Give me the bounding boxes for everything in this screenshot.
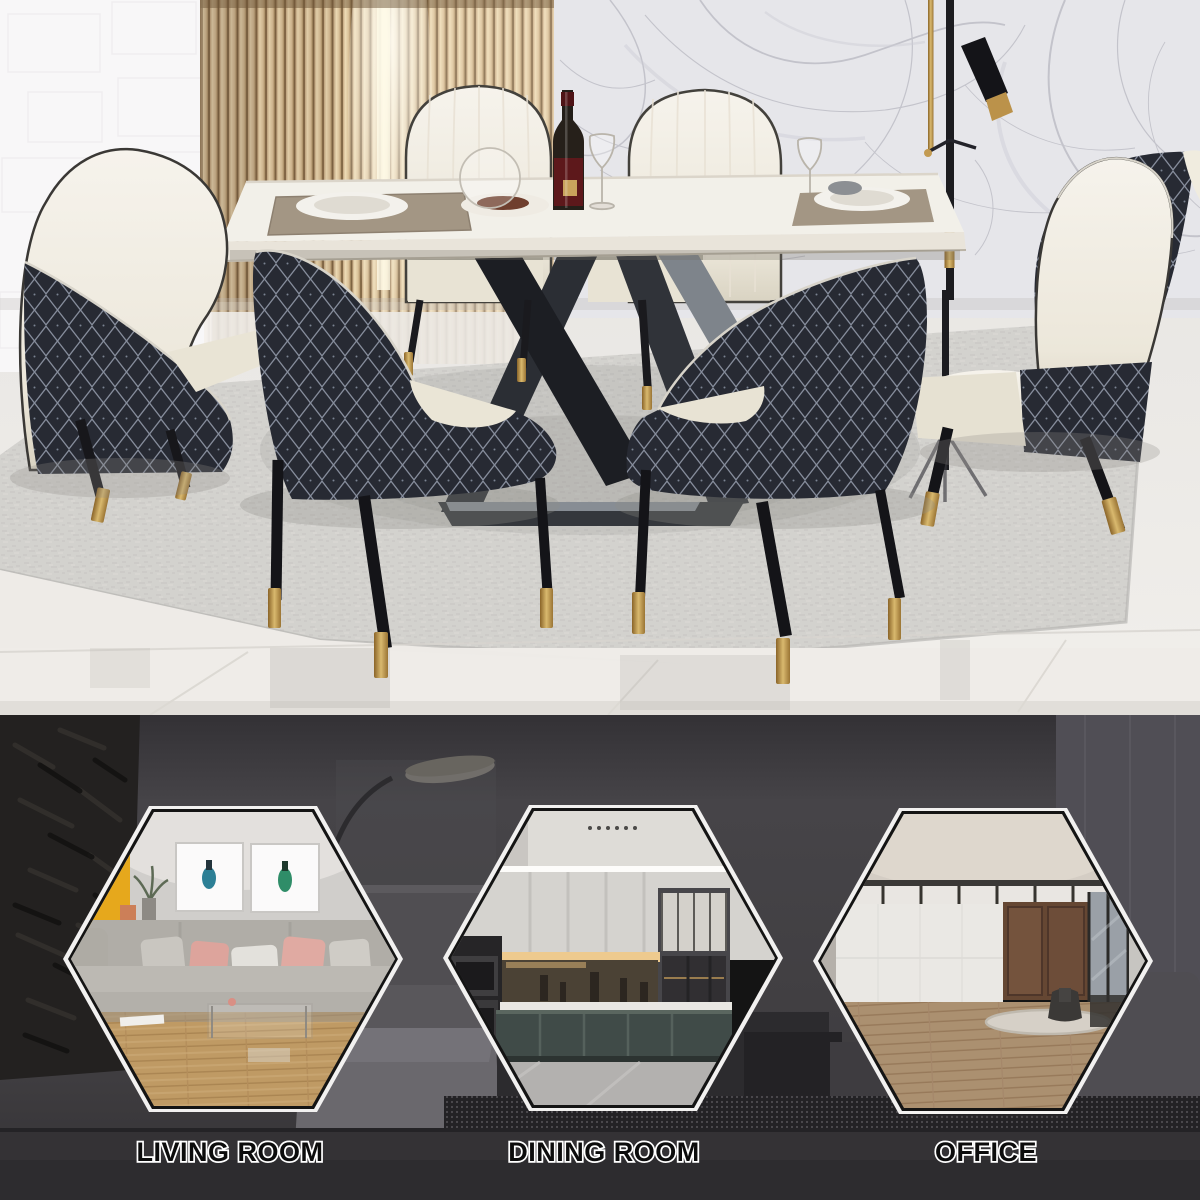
svg-text:DINING ROOM: DINING ROOM: [508, 1137, 700, 1167]
svg-text:OFFICE: OFFICE: [935, 1137, 1037, 1167]
svg-text:LIVING ROOM: LIVING ROOM: [137, 1137, 324, 1167]
